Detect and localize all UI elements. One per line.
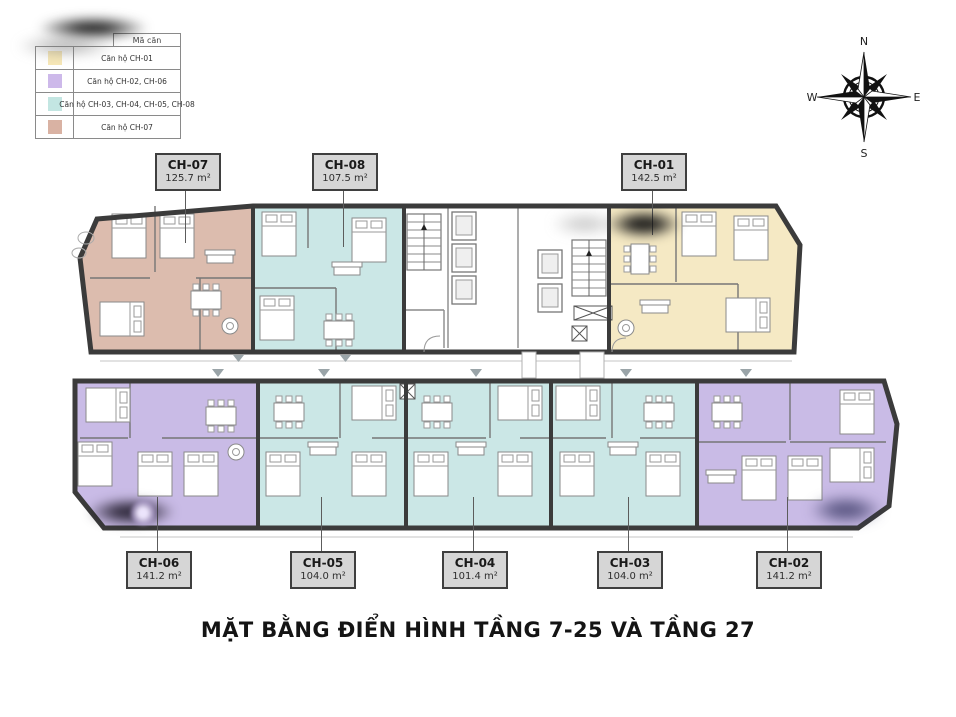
bed-icon bbox=[138, 452, 172, 496]
unit-label-ch06: CH-06 141.2 m² bbox=[126, 551, 192, 589]
table-icon bbox=[228, 444, 244, 460]
bed-icon bbox=[742, 456, 776, 500]
unit-code: CH-07 bbox=[168, 158, 209, 173]
unit-label-ch07: CH-07 125.7 m² bbox=[155, 153, 221, 191]
leader-line-ch04 bbox=[473, 497, 474, 551]
dining-table-icon bbox=[274, 396, 304, 428]
bed-icon bbox=[112, 214, 146, 258]
elevator-icon bbox=[452, 244, 476, 272]
dining-table-icon bbox=[206, 400, 236, 432]
upper-wing bbox=[72, 206, 800, 352]
page-title: MẶT BẰNG ĐIỂN HÌNH TẦNG 7-25 VÀ TẦNG 27 bbox=[0, 618, 956, 642]
bed-icon bbox=[100, 302, 144, 336]
bed-icon bbox=[414, 452, 448, 496]
legend-label: Căn hộ CH-02, CH-06 bbox=[73, 69, 181, 93]
unit-code: CH-08 bbox=[325, 158, 366, 173]
sofa-icon bbox=[205, 250, 235, 263]
unit-label-ch05: CH-05 104.0 m² bbox=[290, 551, 356, 589]
unit-area: 104.0 m² bbox=[300, 571, 346, 584]
bed-icon bbox=[160, 214, 194, 258]
floor-plan-page: N E S W Mã căn Căn hộ CH-01 Căn hộ CH-02… bbox=[0, 0, 956, 717]
bed-icon bbox=[830, 448, 874, 482]
bed-icon bbox=[266, 452, 300, 496]
compass-north-label: N bbox=[860, 35, 868, 48]
leader-line-ch05 bbox=[321, 497, 322, 551]
lower-wing bbox=[75, 381, 897, 537]
elevator-icon bbox=[538, 284, 562, 312]
sofa-icon bbox=[456, 442, 486, 455]
legend-row-ch02-ch06: Căn hộ CH-02, CH-06 bbox=[35, 69, 181, 93]
leader-line-ch01 bbox=[652, 189, 653, 235]
elevator-icon bbox=[452, 276, 476, 304]
bed-icon bbox=[560, 452, 594, 496]
legend-label: Căn hộ CH-01 bbox=[73, 46, 181, 70]
legend-swatch-ch02-ch06 bbox=[48, 74, 62, 88]
sofa-icon bbox=[332, 262, 362, 275]
bed-icon bbox=[682, 212, 716, 256]
bed-icon bbox=[788, 456, 822, 500]
elevator-icon bbox=[452, 212, 476, 240]
legend-swatch-ch01 bbox=[48, 51, 62, 65]
table-icon bbox=[618, 320, 634, 336]
sofa-icon bbox=[640, 300, 670, 313]
bed-icon bbox=[262, 212, 296, 256]
legend-label: Căn hộ CH-07 bbox=[73, 115, 181, 139]
shaft-icon bbox=[574, 306, 612, 320]
sofa-icon bbox=[308, 442, 338, 455]
compass-west-label: W bbox=[807, 91, 818, 104]
bed-icon bbox=[352, 386, 396, 420]
legend-header: Mã căn bbox=[113, 33, 181, 47]
leader-line-ch02 bbox=[787, 497, 788, 551]
bed-icon bbox=[78, 442, 112, 486]
bed-icon bbox=[352, 452, 386, 496]
compass-south-label: S bbox=[861, 147, 868, 160]
legend-row-ch07: Căn hộ CH-07 bbox=[35, 115, 181, 139]
legend-label: Căn hộ CH-03, CH-04, CH-05, CH-08 bbox=[73, 92, 181, 116]
legend: Mã căn Căn hộ CH-01 Căn hộ CH-02, CH-06 … bbox=[35, 33, 181, 139]
bed-icon bbox=[498, 386, 542, 420]
legend-swatch-ch07 bbox=[48, 120, 62, 134]
bed-icon bbox=[556, 386, 600, 420]
unit-code: CH-06 bbox=[139, 556, 180, 571]
unit-area: 141.2 m² bbox=[766, 571, 812, 584]
bed-icon bbox=[260, 296, 294, 340]
sofa-icon bbox=[706, 470, 736, 483]
legend-row-ch01: Căn hộ CH-01 bbox=[35, 46, 181, 70]
dining-table-icon bbox=[624, 244, 656, 274]
direction-markers bbox=[212, 355, 752, 377]
shaft-icon bbox=[572, 326, 587, 341]
bed-icon bbox=[184, 452, 218, 496]
compass-east-label: E bbox=[914, 91, 921, 104]
unit-label-ch08: CH-08 107.5 m² bbox=[312, 153, 378, 191]
bed-icon bbox=[646, 452, 680, 496]
bed-icon bbox=[86, 388, 130, 422]
entry-connector bbox=[580, 352, 604, 378]
dining-table-icon bbox=[712, 396, 742, 428]
bed-icon bbox=[726, 298, 770, 332]
unit-area: 107.5 m² bbox=[322, 173, 368, 186]
unit-area: 142.5 m² bbox=[631, 173, 677, 186]
unit-code: CH-03 bbox=[610, 556, 651, 571]
legend-row-ch03-04-05-08: Căn hộ CH-03, CH-04, CH-05, CH-08 bbox=[35, 92, 181, 116]
sofa-icon bbox=[608, 442, 638, 455]
elevator-icon bbox=[538, 250, 562, 278]
table-icon bbox=[222, 318, 238, 334]
unit-label-ch04: CH-04 101.4 m² bbox=[442, 551, 508, 589]
dining-table-icon bbox=[324, 314, 354, 346]
dining-table-icon bbox=[191, 284, 221, 316]
unit-label-ch03: CH-03 104.0 m² bbox=[597, 551, 663, 589]
unit-area: 101.4 m² bbox=[452, 571, 498, 584]
unit-code: CH-05 bbox=[303, 556, 344, 571]
unit-code: CH-01 bbox=[634, 158, 675, 173]
bed-icon bbox=[840, 390, 874, 434]
stairs-icon bbox=[407, 214, 441, 270]
unit-label-ch01: CH-01 142.5 m² bbox=[621, 153, 687, 191]
unit-label-ch02: CH-02 141.2 m² bbox=[756, 551, 822, 589]
unit-code: CH-04 bbox=[455, 556, 496, 571]
dining-table-icon bbox=[422, 396, 452, 428]
leader-line-ch07 bbox=[185, 189, 186, 243]
leader-line-ch08 bbox=[343, 189, 344, 247]
leader-line-ch03 bbox=[628, 497, 629, 551]
unit-area: 104.0 m² bbox=[607, 571, 653, 584]
entry-connector bbox=[522, 352, 536, 378]
bed-icon bbox=[352, 218, 386, 262]
compass-icon: N E S W bbox=[807, 35, 921, 160]
unit-code: CH-02 bbox=[769, 556, 810, 571]
unit-area: 125.7 m² bbox=[165, 173, 211, 186]
bed-icon bbox=[498, 452, 532, 496]
dining-table-icon bbox=[644, 396, 674, 428]
leader-line-ch06 bbox=[157, 497, 158, 551]
bed-icon bbox=[734, 216, 768, 260]
unit-area: 141.2 m² bbox=[136, 571, 182, 584]
stairs-icon bbox=[572, 240, 606, 296]
